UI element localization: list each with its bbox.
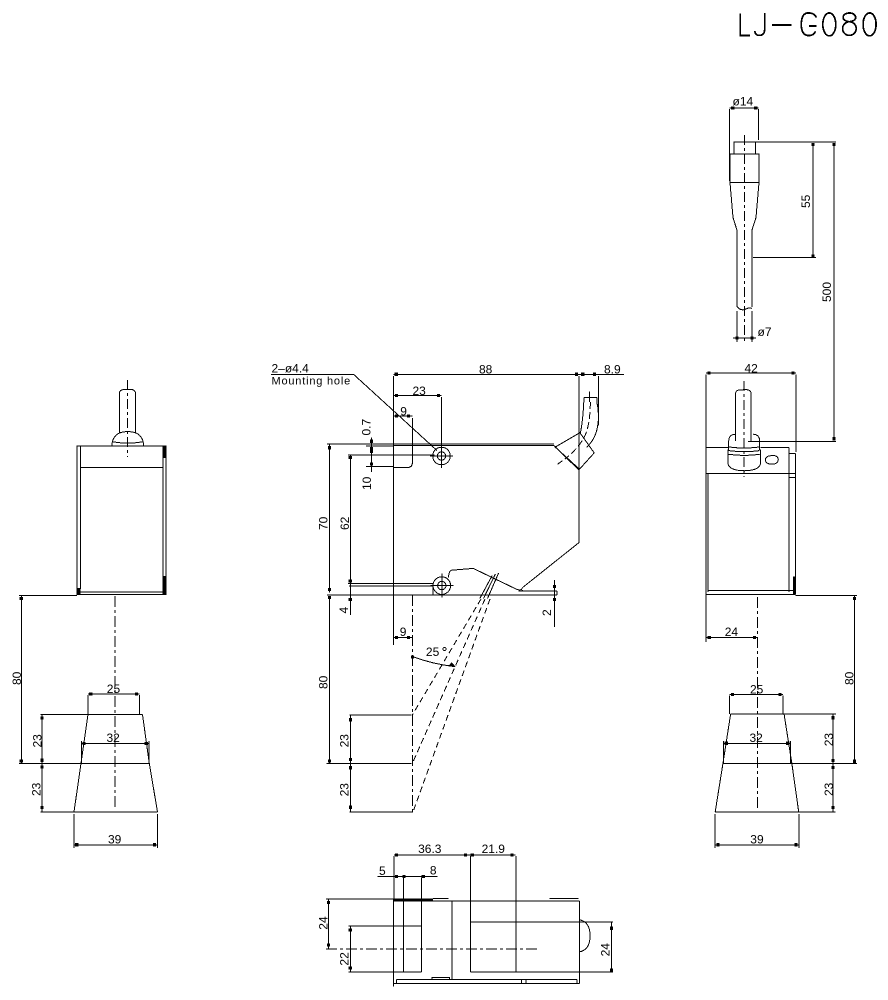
svg-text:Mounting hole: Mounting hole xyxy=(272,376,352,388)
svg-text:23: 23 xyxy=(822,782,836,796)
svg-text:23: 23 xyxy=(31,734,45,748)
svg-text:80: 80 xyxy=(317,675,331,689)
svg-text:ø14: ø14 xyxy=(733,95,754,109)
svg-text:24: 24 xyxy=(725,625,739,639)
svg-text:36.3: 36.3 xyxy=(418,842,442,856)
svg-text:21.9: 21.9 xyxy=(482,842,506,856)
svg-text:5: 5 xyxy=(379,864,386,878)
svg-text:32: 32 xyxy=(750,731,764,745)
svg-text:8: 8 xyxy=(430,863,437,877)
svg-text:24: 24 xyxy=(599,943,613,957)
svg-text:23: 23 xyxy=(338,783,352,797)
svg-text:0.7: 0.7 xyxy=(360,418,374,435)
svg-text:500: 500 xyxy=(820,282,834,302)
svg-text:10: 10 xyxy=(360,476,374,490)
svg-text:9: 9 xyxy=(400,625,407,639)
svg-text:ø7: ø7 xyxy=(758,325,772,339)
svg-text:4: 4 xyxy=(337,607,351,614)
svg-text:25: 25 xyxy=(426,645,440,659)
svg-text:80: 80 xyxy=(10,671,24,685)
svg-text:22: 22 xyxy=(337,952,351,966)
svg-text:2–ø4.4: 2–ø4.4 xyxy=(272,362,310,376)
svg-text:24: 24 xyxy=(316,916,330,930)
svg-text:23: 23 xyxy=(30,782,44,796)
svg-text:70: 70 xyxy=(317,516,331,530)
svg-text:55: 55 xyxy=(799,194,813,208)
svg-text:23: 23 xyxy=(822,733,836,747)
svg-text:39: 39 xyxy=(750,833,764,847)
svg-text:23: 23 xyxy=(413,384,427,398)
svg-text:8.9: 8.9 xyxy=(604,363,621,377)
svg-text:88: 88 xyxy=(479,363,493,377)
svg-text:32: 32 xyxy=(107,731,121,745)
svg-text:2: 2 xyxy=(540,609,554,616)
svg-text:25: 25 xyxy=(750,683,764,697)
svg-text:80: 80 xyxy=(843,671,857,685)
svg-text:42: 42 xyxy=(745,361,759,375)
svg-text:25: 25 xyxy=(107,682,121,696)
svg-text:39: 39 xyxy=(108,833,122,847)
svg-text:23: 23 xyxy=(338,734,352,748)
svg-text:62: 62 xyxy=(338,516,352,530)
svg-text:9: 9 xyxy=(400,404,407,418)
